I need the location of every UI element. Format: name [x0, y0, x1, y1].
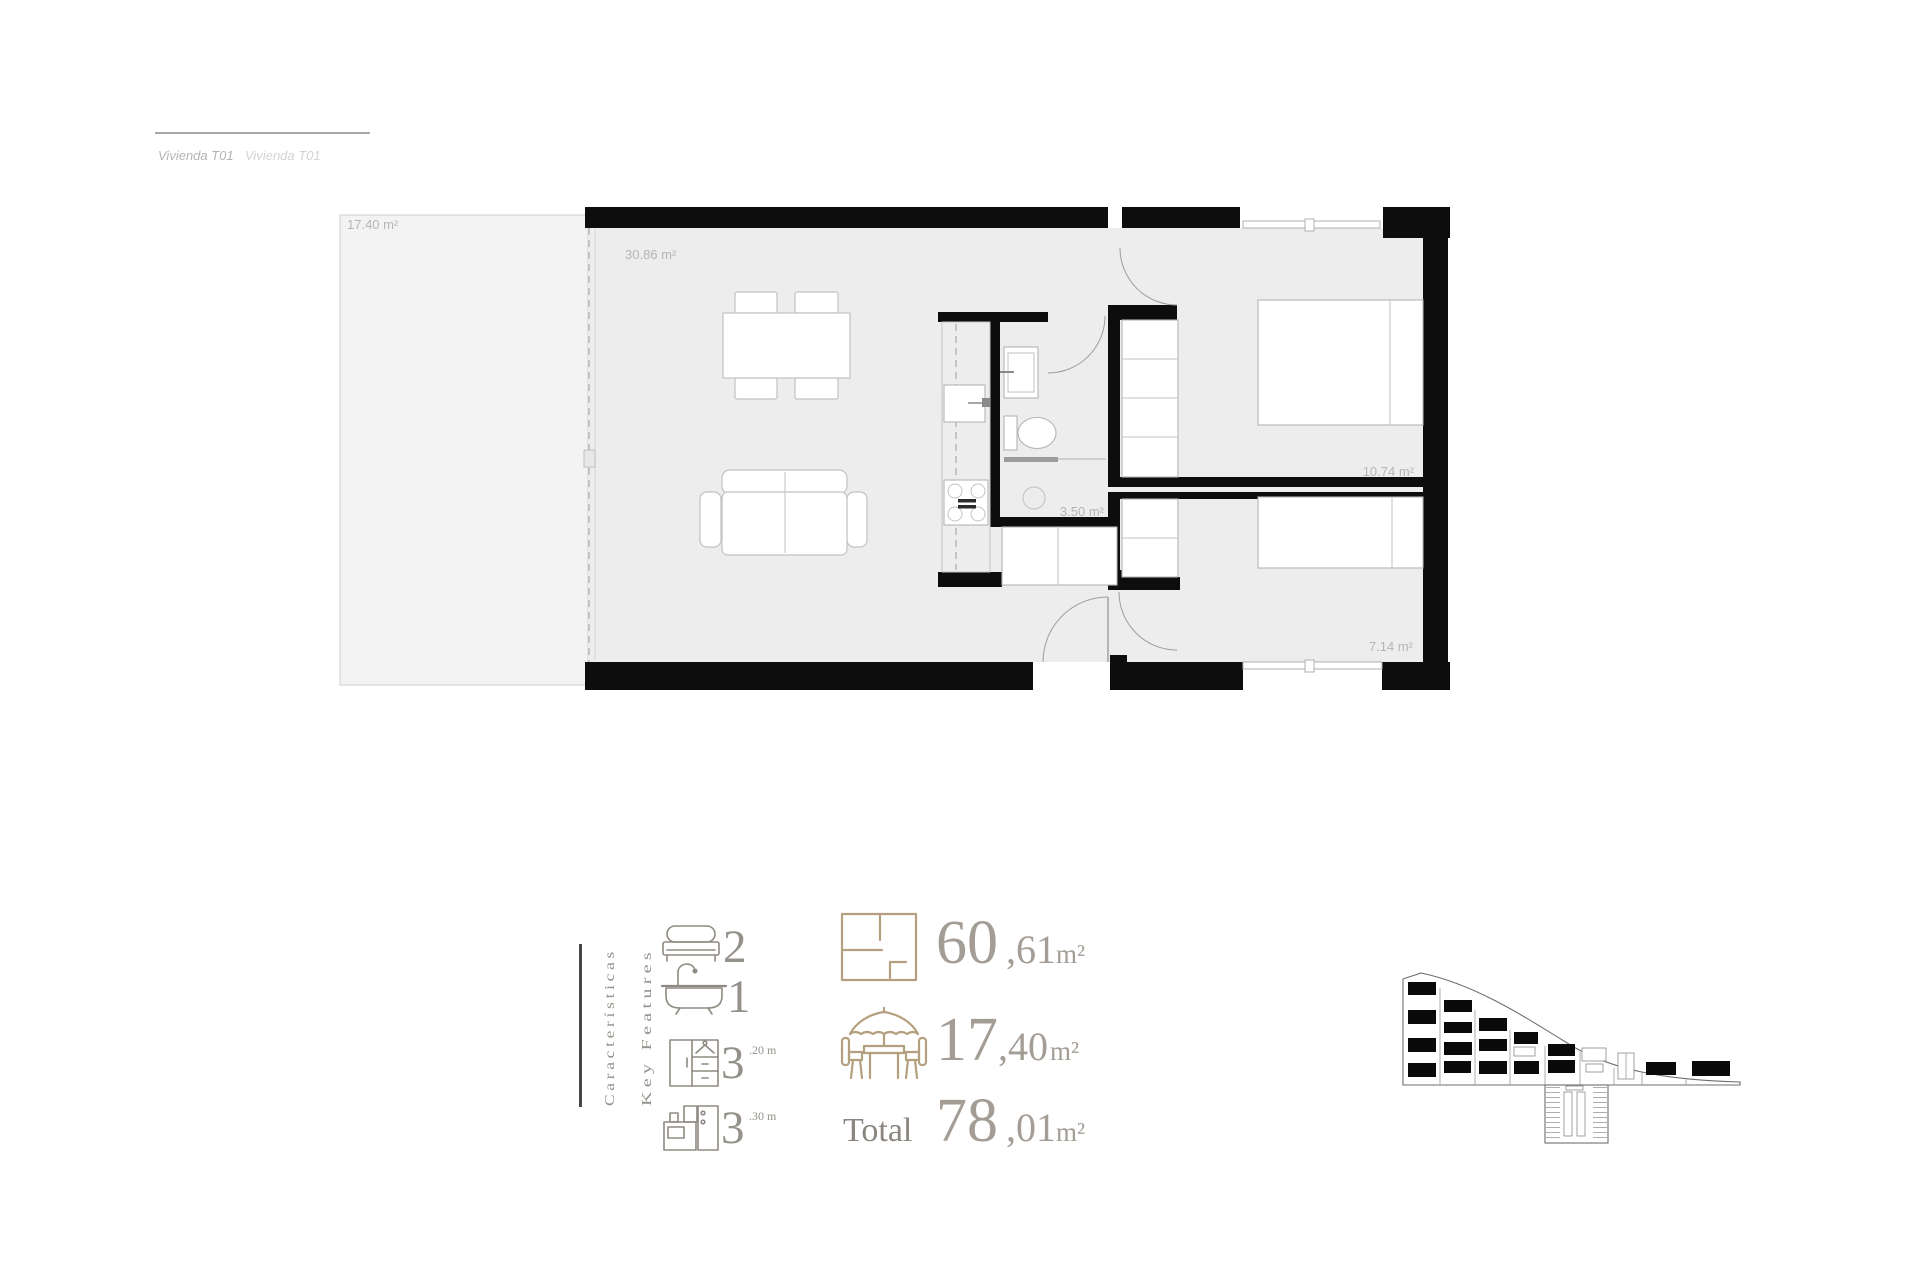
bedroom1-bed [1258, 300, 1423, 425]
terrace-area-label: 17.40 m² [347, 217, 399, 232]
plan-canvas: Vivienda T01 Vivienda T01 17.40 m² [0, 0, 1920, 1280]
interior-area-unit: m² [1056, 939, 1085, 969]
building-elevation-diagram [1403, 973, 1740, 1143]
closet-bedroom2 [1122, 499, 1178, 577]
living-area-label: 30.86 m² [625, 247, 677, 262]
toilet [1004, 416, 1056, 450]
total-area-dec: ,01 [1006, 1105, 1056, 1150]
area-summary: 60 ,61 m² 17 ,40 m² Total 78 ,01 m² [842, 909, 1085, 1155]
closet-bedroom1 [1122, 320, 1178, 477]
storage-cells [1002, 527, 1117, 585]
bed-icon [663, 926, 719, 961]
stove [944, 480, 988, 525]
door-handle [584, 450, 595, 467]
wardrobe-count: 3 [721, 1037, 745, 1089]
terrace-area-int: 17 [936, 1006, 998, 1074]
bathroom-area-label: 3.50 m² [1060, 504, 1105, 519]
page-title: Vivienda T01 [158, 148, 234, 163]
interior-area-int: 60 [936, 909, 998, 977]
kitchen-icon [664, 1106, 718, 1150]
floorplan-icon [842, 914, 916, 980]
bathtub-icon [662, 964, 726, 1014]
sofa [700, 470, 867, 555]
bedroom1-area-label: 10.74 m² [1363, 464, 1415, 479]
kitchen-count: 3 [721, 1102, 745, 1154]
bedrooms-count: 2 [723, 921, 747, 973]
stair-tower [1545, 1085, 1608, 1143]
terrace-area-dec: ,40 [998, 1024, 1048, 1069]
features-rule [579, 944, 582, 1107]
shower-strip [1004, 457, 1058, 462]
wardrobe-note: .20 m [749, 1043, 777, 1057]
features-heading-es: Características [603, 948, 618, 1106]
bedroom2-window [1243, 660, 1382, 672]
page-title-secondary: Vivienda T01 [245, 148, 321, 163]
terrace-area-unit: m² [1050, 1036, 1079, 1066]
total-label: Total [843, 1112, 912, 1149]
kitchen-note: .30 m [749, 1109, 777, 1123]
features-heading-en: Key Features [640, 948, 655, 1106]
bathrooms-count: 1 [727, 971, 751, 1023]
bedroom2-area-label: 7.14 m² [1369, 639, 1414, 654]
wardrobe-icon [670, 1040, 718, 1086]
header: Vivienda T01 Vivienda T01 [155, 133, 370, 163]
terrace-umbrella-icon [842, 1008, 926, 1078]
total-area-unit: m² [1056, 1117, 1085, 1147]
key-features: Características Key Features 2 1 [579, 921, 777, 1154]
floor-plan: 17.40 m² [340, 207, 1450, 690]
bedroom2-bed [1258, 497, 1423, 568]
plan-sheet: Vivienda T01 Vivienda T01 17.40 m² [0, 0, 1920, 1280]
terrace-area [340, 215, 588, 685]
total-area-int: 78 [936, 1087, 998, 1155]
interior-area-dec: ,61 [1006, 927, 1056, 972]
